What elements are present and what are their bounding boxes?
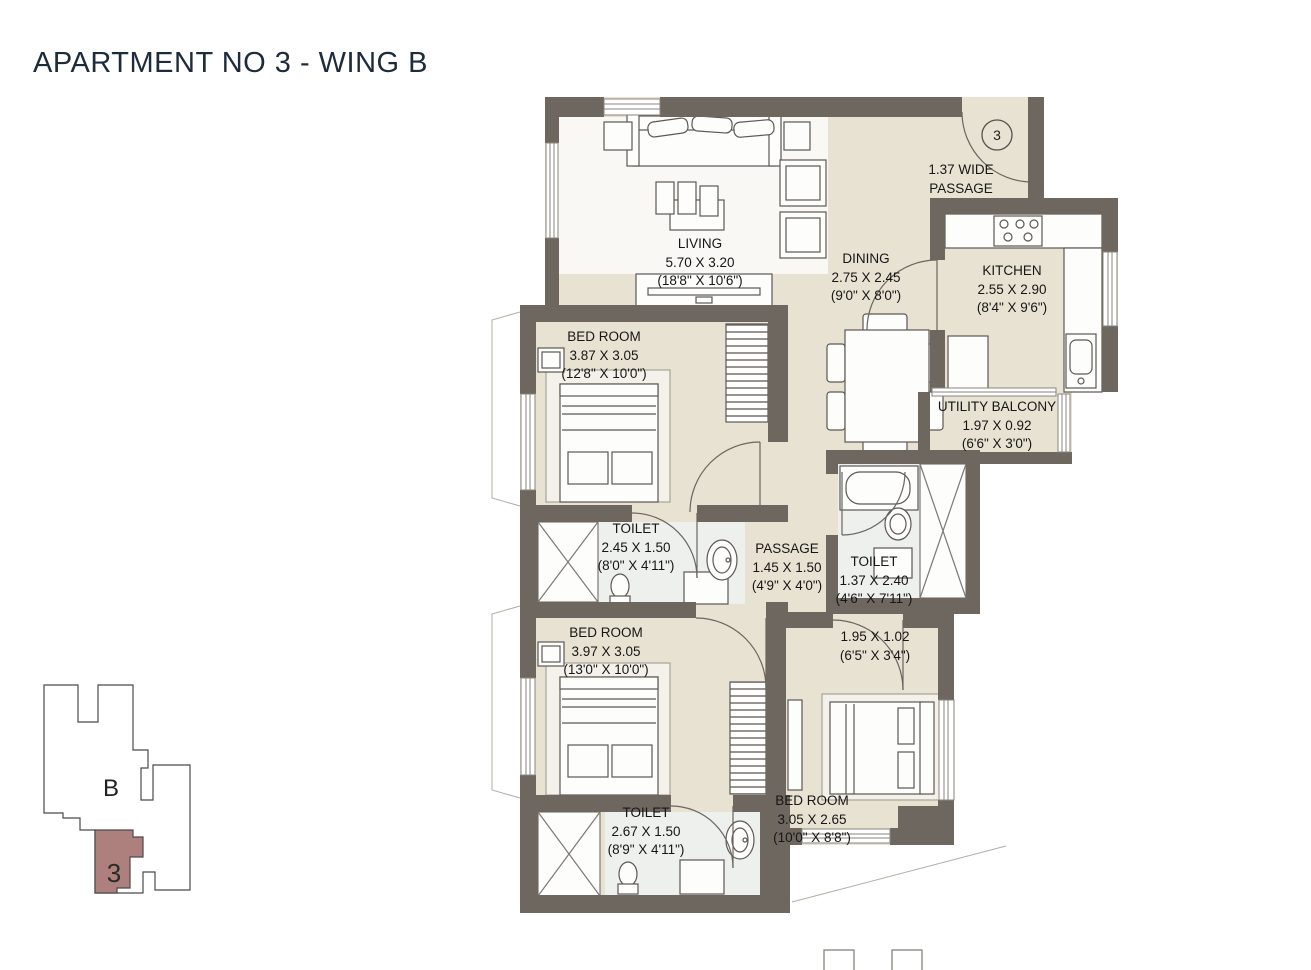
room-label-toilet3: TOILET 2.67 X 1.50 (8'9" X 4'11") bbox=[586, 804, 706, 860]
room-dim-ft: (18'8" X 10'6") bbox=[600, 272, 800, 291]
room-dim-m: 3.05 X 2.65 bbox=[742, 811, 882, 830]
label-wide-passage: 1.37 WIDE PASSAGE bbox=[900, 161, 1022, 198]
room-dim-ft: (13'0" X 10'0") bbox=[536, 661, 676, 680]
kitchen-sink bbox=[1066, 334, 1096, 388]
keyplan-wing-label: B bbox=[103, 775, 119, 802]
wardrobe-bedroom3 bbox=[788, 700, 802, 790]
wardrobe-bedroom2 bbox=[730, 682, 766, 794]
room-name: BED ROOM bbox=[742, 792, 882, 811]
room-dim-ft: (8'4" X 9'6") bbox=[952, 299, 1072, 318]
window bbox=[604, 99, 660, 115]
exterior-columns bbox=[824, 950, 922, 970]
room-dim-m: 2.45 X 1.50 bbox=[576, 539, 696, 558]
room-dim-m: 3.87 X 3.05 bbox=[534, 347, 674, 366]
room-name: UTILITY BALCONY bbox=[927, 398, 1067, 417]
room-dim-m: 1.97 X 0.92 bbox=[927, 417, 1067, 436]
room-label-bedroom2: BED ROOM 3.97 X 3.05 (13'0" X 10'0") bbox=[536, 624, 676, 680]
room-label-toilet1: TOILET 2.45 X 1.50 (8'0" X 4'11") bbox=[576, 520, 696, 576]
room-name: KITCHEN bbox=[952, 262, 1072, 281]
room-name: TOILET bbox=[576, 520, 696, 539]
room-label-utility-balcony: UTILITY BALCONY 1.97 X 0.92 (6'6" X 3'0"… bbox=[927, 398, 1067, 454]
kitchen-hob bbox=[994, 216, 1042, 246]
room-name: LIVING bbox=[600, 235, 800, 254]
room-dim-m: 2.75 X 2.45 bbox=[806, 269, 926, 288]
room-dim-m: 2.67 X 1.50 bbox=[586, 823, 706, 842]
room-dim-ft: (9'0" X 8'0") bbox=[806, 287, 926, 306]
wc-icon bbox=[611, 574, 629, 598]
room-dim-ft: (8'9" X 4'11") bbox=[586, 841, 706, 860]
room-name: BED ROOM bbox=[534, 328, 674, 347]
room-name: TOILET bbox=[586, 804, 706, 823]
window bbox=[939, 700, 954, 800]
washbasin-icon bbox=[885, 508, 911, 540]
wide-passage-line1: 1.37 WIDE bbox=[900, 161, 1022, 180]
room-label-bedroom1: BED ROOM 3.87 X 3.05 (12'8" X 10'0") bbox=[534, 328, 674, 384]
refrigerator bbox=[948, 336, 988, 392]
utility-sliding-window bbox=[932, 388, 1056, 396]
room-dim-ft: (10'0" X 8'8") bbox=[742, 829, 882, 848]
sofa bbox=[627, 114, 781, 166]
window bbox=[521, 678, 535, 775]
room-dim-ft: (6'5" X 3'4") bbox=[805, 647, 945, 666]
room-label-dining: DINING 2.75 X 2.45 (9'0" X 8'0") bbox=[806, 250, 926, 306]
room-dim-m: 5.70 X 3.20 bbox=[600, 254, 800, 273]
room-dim-m: 1.95 X 1.02 bbox=[805, 628, 945, 647]
wide-passage-line2: PASSAGE bbox=[900, 180, 1022, 199]
room-dim-ft: (8'0" X 4'11") bbox=[576, 557, 696, 576]
entrance-unit-number-text: 3 bbox=[993, 127, 1001, 143]
room-label-toilet2: TOILET 1.37 X 2.40 (4'6" X 7'11") bbox=[814, 553, 934, 609]
bed-bedroom3 bbox=[822, 694, 942, 800]
room-name: BED ROOM bbox=[536, 624, 676, 643]
window bbox=[521, 394, 535, 490]
room-dim-ft: (6'6" X 3'0") bbox=[927, 435, 1067, 454]
keyplan-unit-label: 3 bbox=[107, 858, 121, 888]
room-label-kitchen: KITCHEN 2.55 X 2.90 (8'4" X 9'6") bbox=[952, 262, 1072, 318]
window bbox=[546, 143, 558, 238]
room-dim-m: 1.37 X 2.40 bbox=[814, 572, 934, 591]
window bbox=[1103, 252, 1117, 326]
room-dim-m: 3.97 X 3.05 bbox=[536, 643, 676, 662]
room-name: TOILET bbox=[814, 553, 934, 572]
room-label-living: LIVING 5.70 X 3.20 (18'8" X 10'6") bbox=[600, 235, 800, 291]
label-bedroom3-entry-dims: 1.95 X 1.02 (6'5" X 3'4") bbox=[805, 628, 945, 665]
shower-shelf bbox=[680, 860, 724, 894]
room-dim-ft: (12'8" X 10'0") bbox=[534, 365, 674, 384]
wardrobe-bedroom1 bbox=[726, 324, 768, 422]
wc-icon bbox=[619, 862, 637, 886]
room-label-bedroom3: BED ROOM 3.05 X 2.65 (10'0" X 8'8") bbox=[742, 792, 882, 848]
room-dim-m: 2.55 X 2.90 bbox=[952, 281, 1072, 300]
room-name: DINING bbox=[806, 250, 926, 269]
room-dim-ft: (4'6" X 7'11") bbox=[814, 590, 934, 609]
keyplan: B 3 bbox=[44, 685, 190, 893]
